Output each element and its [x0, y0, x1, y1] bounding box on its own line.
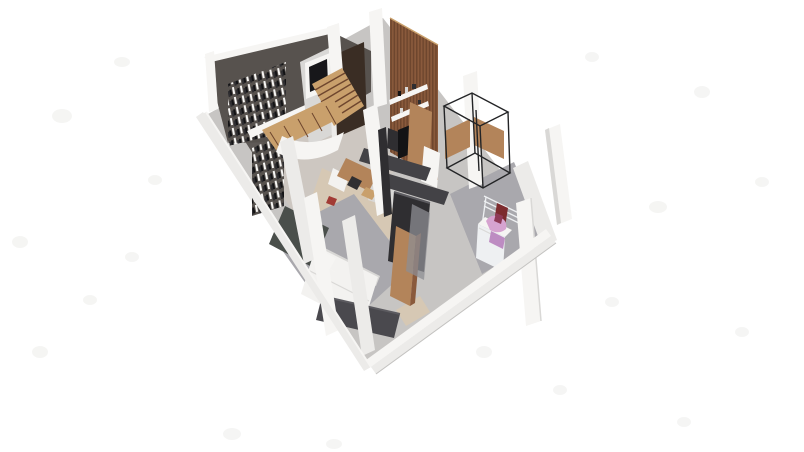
background-artifact	[605, 297, 619, 307]
background-artifact	[125, 252, 139, 262]
background-artifact	[83, 295, 97, 305]
screenshot-canvas	[0, 0, 804, 452]
background-artifact	[649, 201, 667, 213]
background-artifact	[326, 439, 342, 449]
background-artifact	[476, 346, 492, 358]
background-artifact	[585, 52, 599, 62]
background-artifact	[553, 385, 567, 395]
background-artifact	[677, 417, 691, 427]
background-artifact	[148, 175, 162, 185]
floorplan-render	[0, 0, 804, 452]
background-artifact	[735, 327, 749, 337]
background-artifact	[52, 109, 72, 123]
background-artifact	[114, 57, 130, 67]
background-artifact	[223, 428, 241, 440]
background-artifact	[694, 86, 710, 98]
background-artifact	[12, 236, 28, 248]
background-artifact	[32, 346, 48, 358]
background-artifact	[755, 177, 769, 187]
